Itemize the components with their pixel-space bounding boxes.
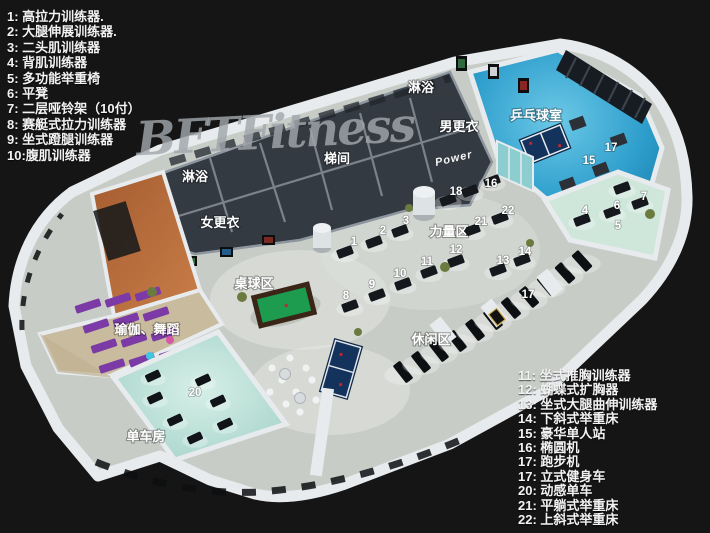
number-marker: 17 xyxy=(605,142,618,154)
number-marker: 17 xyxy=(522,289,535,301)
room-label: 淋浴 xyxy=(182,169,209,184)
chair xyxy=(286,354,293,361)
table xyxy=(295,393,306,404)
chair xyxy=(312,396,319,403)
legend-item: 17: 跑步机 xyxy=(518,455,657,469)
number-marker: 3 xyxy=(403,215,409,227)
legend-item: 22: 上斜式举重床 xyxy=(518,513,657,527)
legend-bottom-right: 11: 坐式推胸训练器12: 蝴蝶式扩胸器13: 坐式大腿曲伸训练器14: 下斜… xyxy=(518,369,657,527)
chair xyxy=(266,388,273,395)
legend-item: 6: 平凳 xyxy=(7,86,141,101)
room-label: 力量区 xyxy=(429,224,468,239)
legend-item: 4: 背肌训练器 xyxy=(7,55,141,70)
number-marker: 14 xyxy=(519,246,532,258)
legend-item: 5: 多功能举重椅 xyxy=(7,71,141,86)
room-label: 女更衣 xyxy=(200,215,239,230)
number-marker: 8 xyxy=(343,290,350,302)
legend-item: 21: 平躺式举重床 xyxy=(518,499,657,513)
number-marker: 20 xyxy=(189,387,202,399)
exercise-ball-pink xyxy=(166,336,174,344)
room-label: 梯间 xyxy=(324,151,350,166)
legend-item: 12: 蝴蝶式扩胸器 xyxy=(518,383,657,397)
number-marker: 2 xyxy=(380,225,386,237)
legend-item: 1: 高拉力训练器. xyxy=(7,9,141,24)
chair xyxy=(302,364,309,371)
chair xyxy=(308,376,315,383)
number-marker: 15 xyxy=(583,155,596,167)
legend-item: 10:腹肌训练器 xyxy=(7,148,141,163)
room-label: 休闲区 xyxy=(410,332,450,347)
number-marker: 1 xyxy=(351,236,358,248)
number-marker: 21 xyxy=(475,216,488,228)
gym-floorplan-image: Power 淋浴男更衣乒乓球室梯间淋浴女更衣桌球区力量区休闲区瑜伽、舞蹈单车房 … xyxy=(0,0,710,533)
room-label: 淋浴 xyxy=(408,80,435,95)
number-marker: 11 xyxy=(421,256,434,268)
legend-item: 3: 二头肌训练器 xyxy=(7,40,141,55)
legend-item: 2: 大腿伸展训练器. xyxy=(7,24,141,39)
legend-item: 9: 坐式蹬腿训练器 xyxy=(7,132,141,147)
room-label: 单车房 xyxy=(126,429,165,444)
room-label: 男更衣 xyxy=(439,119,478,134)
chair xyxy=(296,408,303,415)
number-marker: 7 xyxy=(641,191,647,203)
legend-item: 15: 豪华单人站 xyxy=(518,427,657,441)
number-marker: 22 xyxy=(502,205,515,217)
number-marker: 10 xyxy=(394,268,407,280)
room-label: 桌球区 xyxy=(234,276,273,291)
legend-item: 8: 赛艇式拉力训练器 xyxy=(7,117,141,132)
table xyxy=(280,369,291,380)
chair xyxy=(268,364,275,371)
room-label: 乒乓球室 xyxy=(510,108,562,123)
room-label: 瑜伽、舞蹈 xyxy=(114,322,179,337)
chair xyxy=(282,400,289,407)
legend-top-left: 1: 高拉力训练器.2: 大腿伸展训练器.3: 二头肌训练器4: 背肌训练器5:… xyxy=(7,9,141,163)
number-marker: 13 xyxy=(497,255,510,267)
legend-item: 20: 动感单车 xyxy=(518,484,657,498)
number-marker: 16 xyxy=(485,178,498,190)
number-marker: 6 xyxy=(614,200,620,212)
number-marker: 9 xyxy=(369,279,375,291)
number-marker: 4 xyxy=(582,205,589,217)
number-marker: 18 xyxy=(450,186,463,198)
legend-item: 14: 下斜式举重床 xyxy=(518,412,657,426)
number-marker: 5 xyxy=(615,220,622,232)
number-marker: 12 xyxy=(450,244,463,256)
legend-item: 7: 二层哑铃架（10付） xyxy=(7,101,141,116)
